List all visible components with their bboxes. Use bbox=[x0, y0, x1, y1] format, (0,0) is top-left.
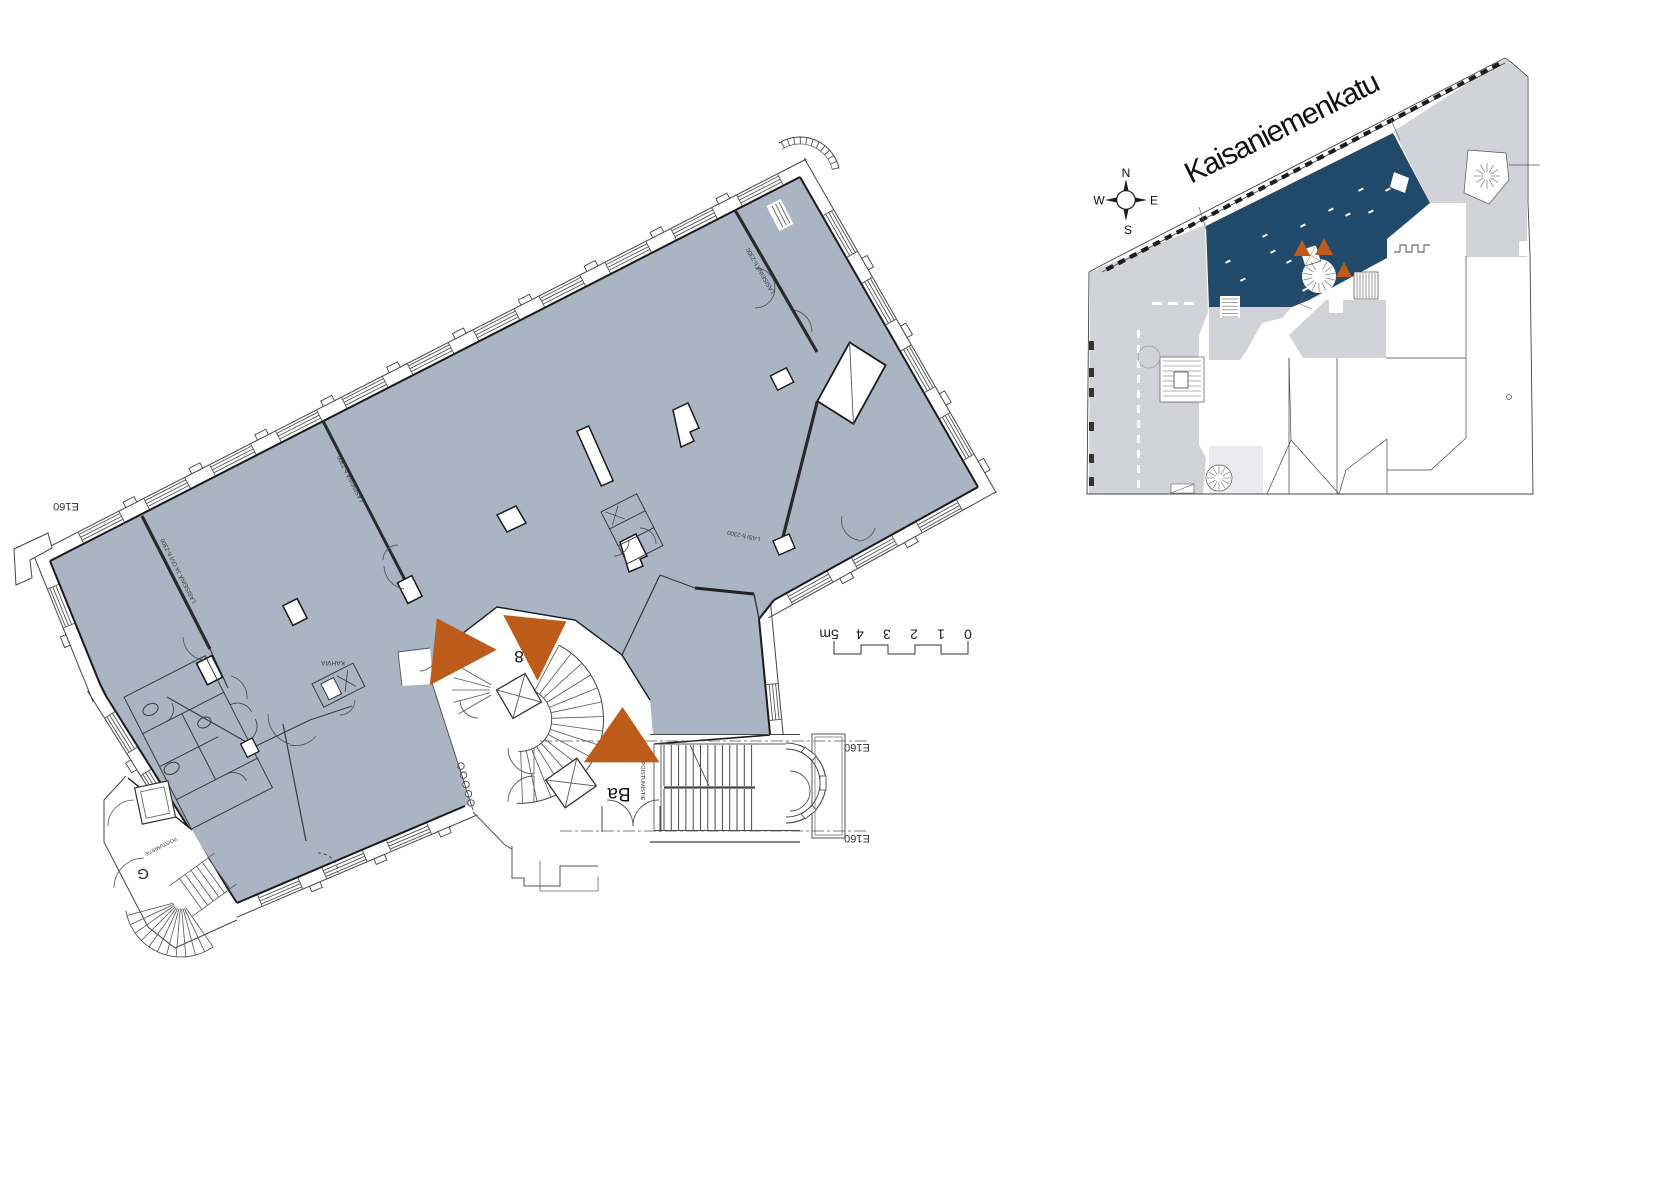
svg-text:4: 4 bbox=[856, 627, 864, 643]
svg-text:KAHVIA: KAHVIA bbox=[320, 659, 345, 666]
svg-text:5m: 5m bbox=[819, 627, 838, 643]
svg-text:POISTUMISTIE: POISTUMISTIE bbox=[639, 762, 645, 801]
svg-text:2: 2 bbox=[910, 627, 918, 643]
svg-text:1: 1 bbox=[937, 627, 945, 643]
svg-text:E: E bbox=[1150, 194, 1158, 208]
svg-text:0: 0 bbox=[964, 627, 972, 643]
svg-text:N: N bbox=[1122, 166, 1131, 180]
svg-text:E160: E160 bbox=[844, 832, 870, 844]
svg-text:G: G bbox=[137, 865, 149, 882]
svg-text:3: 3 bbox=[883, 627, 891, 643]
svg-text:E160: E160 bbox=[53, 500, 79, 512]
svg-text:S: S bbox=[1124, 223, 1132, 237]
svg-text:W: W bbox=[1093, 194, 1105, 208]
svg-text:E160: E160 bbox=[844, 741, 870, 753]
svg-text:Ba: Ba bbox=[607, 783, 631, 804]
